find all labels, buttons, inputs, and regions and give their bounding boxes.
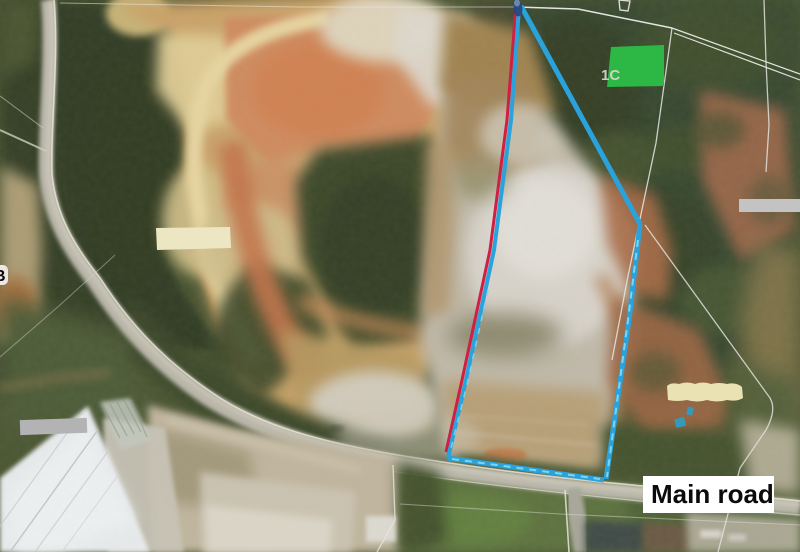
svg-text:Main road: Main road bbox=[651, 479, 774, 509]
svg-text:1C: 1C bbox=[601, 67, 620, 84]
svg-text:B: B bbox=[0, 268, 6, 285]
